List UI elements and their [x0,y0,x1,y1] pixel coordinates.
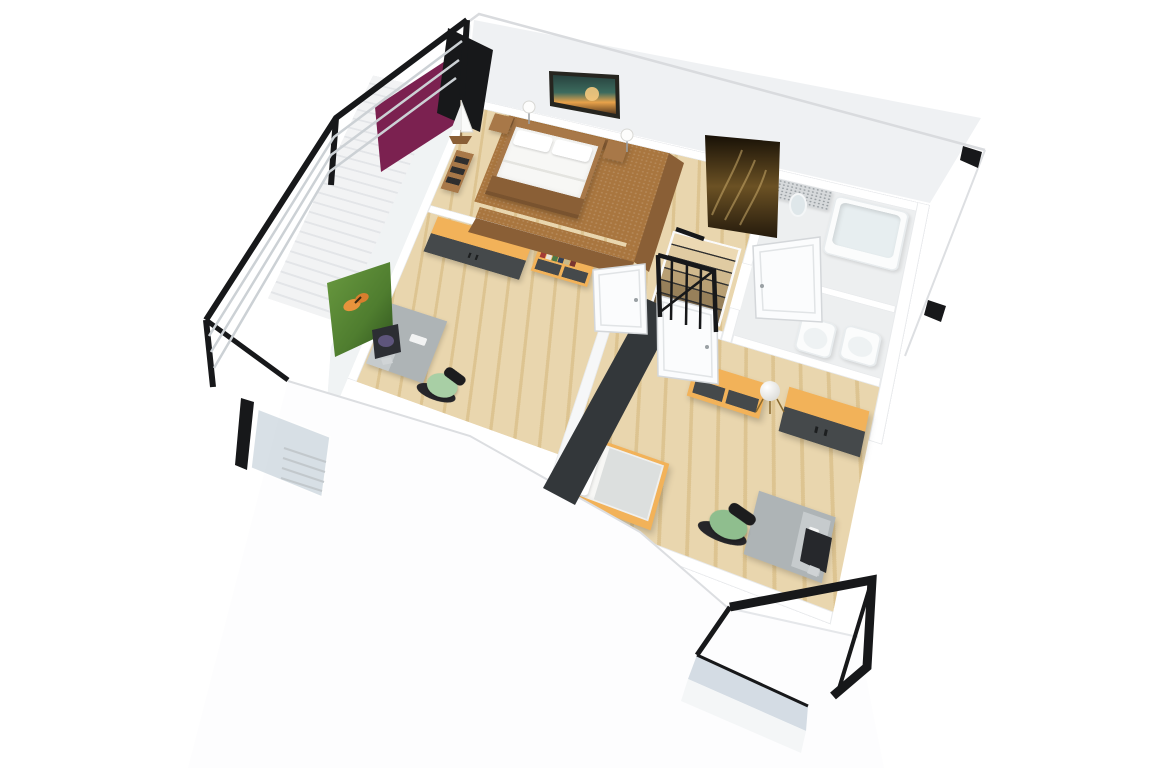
window-slit-east-lower [924,300,946,322]
study-desk-keyboard [409,334,428,347]
wardrobe-handle [475,255,479,261]
lower-floor-corner-post [235,398,254,470]
landscape-picture [553,75,616,114]
bedroom2-sideboard-shelf [692,379,725,402]
landscape-picture-sun [585,87,599,101]
bedroom2-desk-drawers [791,512,831,577]
toilet-seat [801,325,829,352]
drawer-handle [804,549,815,556]
wardrobe-handle [468,253,472,259]
window-slit-east-upper [960,146,982,168]
bathtub-basin [831,202,901,259]
bedroom2-sideboard-shelf [725,390,759,413]
landscape-picture-frame [549,71,620,119]
side-table-cubby [454,156,470,165]
floor-plane [325,97,930,630]
side-table-cubby [445,176,461,185]
bidet-basin [846,334,874,360]
lower-floor-glass [251,409,330,497]
lower-floor-louvers [281,448,326,491]
side-table-cubby [450,166,466,175]
drawer-handle [809,526,820,533]
wardrobe-handle [824,429,828,436]
balcony-south-sill [681,679,806,753]
wardrobe-handle [814,426,818,433]
study-sideboard-shelf [561,266,588,283]
balcony-south-glass [688,655,808,731]
floorplan-render [0,0,1152,768]
